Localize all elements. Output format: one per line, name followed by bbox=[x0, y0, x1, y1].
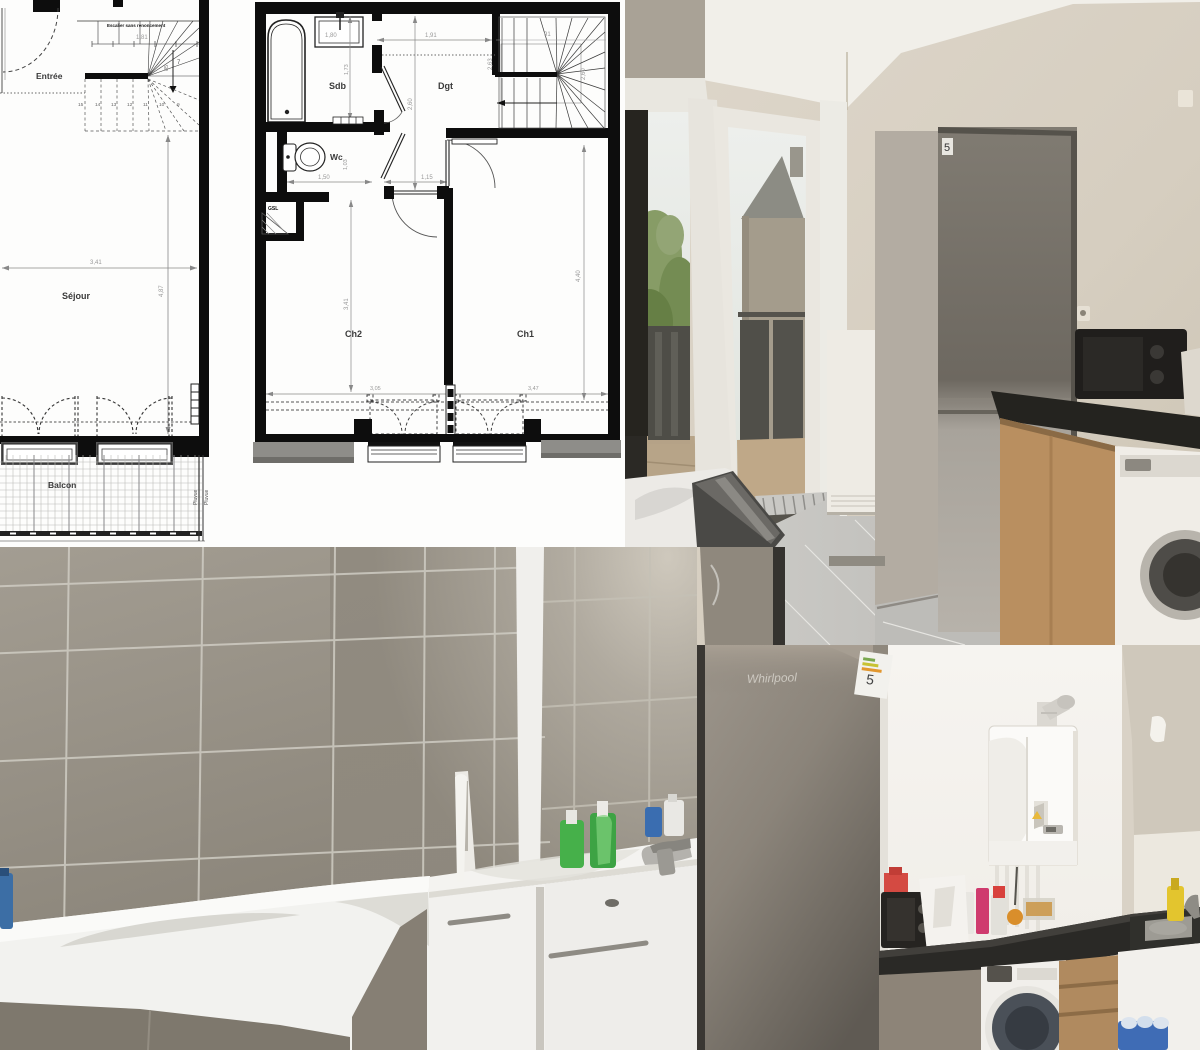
svg-text:14: 14 bbox=[95, 102, 101, 108]
svg-text:11: 11 bbox=[143, 102, 148, 108]
svg-text:3,47: 3,47 bbox=[528, 386, 539, 392]
svg-text:1,15: 1,15 bbox=[421, 175, 433, 181]
svg-text:4,87: 4,87 bbox=[159, 285, 165, 297]
svg-text:85: 85 bbox=[164, 65, 170, 71]
svg-text:Wc: Wc bbox=[330, 152, 343, 162]
svg-text:1,73: 1,73 bbox=[344, 64, 350, 75]
svg-text:Dgt: Dgt bbox=[438, 81, 453, 91]
svg-text:1,03: 1,03 bbox=[343, 159, 349, 170]
svg-text:3,05: 3,05 bbox=[370, 386, 381, 392]
svg-text:9: 9 bbox=[177, 102, 180, 108]
svg-text:1,91: 1,91 bbox=[425, 33, 437, 39]
svg-text:Pluvue: Pluvue bbox=[193, 489, 199, 505]
svg-text:Ch1: Ch1 bbox=[517, 329, 534, 339]
svg-text:Pluvue: Pluvue bbox=[204, 489, 210, 505]
svg-text:3,41: 3,41 bbox=[344, 298, 350, 310]
svg-text:15: 15 bbox=[78, 102, 84, 108]
svg-text:10: 10 bbox=[159, 102, 165, 108]
svg-text:12: 12 bbox=[127, 102, 133, 108]
svg-text:1,80: 1,80 bbox=[325, 33, 337, 39]
svg-text:4,40: 4,40 bbox=[576, 270, 582, 282]
svg-text:2,63: 2,63 bbox=[488, 58, 494, 70]
svg-text:5: 5 bbox=[944, 142, 950, 154]
svg-text:1,81: 1,81 bbox=[136, 35, 148, 41]
svg-text:3,41: 3,41 bbox=[90, 260, 102, 266]
svg-text:91: 91 bbox=[544, 32, 551, 38]
svg-text:Ch2: Ch2 bbox=[345, 329, 362, 339]
svg-text:Escalier sans renoncement: Escalier sans renoncement bbox=[107, 23, 166, 28]
svg-text:2,60: 2,60 bbox=[408, 98, 414, 110]
svg-text:Whirlpool: Whirlpool bbox=[747, 670, 798, 686]
svg-text:Entrée: Entrée bbox=[36, 71, 63, 81]
svg-text:2,60: 2,60 bbox=[581, 68, 587, 80]
svg-text:Séjour: Séjour bbox=[62, 291, 91, 301]
svg-text:GSL: GSL bbox=[268, 206, 278, 212]
svg-text:13: 13 bbox=[111, 102, 117, 108]
svg-text:Balcon: Balcon bbox=[48, 480, 76, 490]
svg-text:Sdb: Sdb bbox=[329, 81, 347, 91]
svg-text:1,50: 1,50 bbox=[318, 175, 330, 181]
